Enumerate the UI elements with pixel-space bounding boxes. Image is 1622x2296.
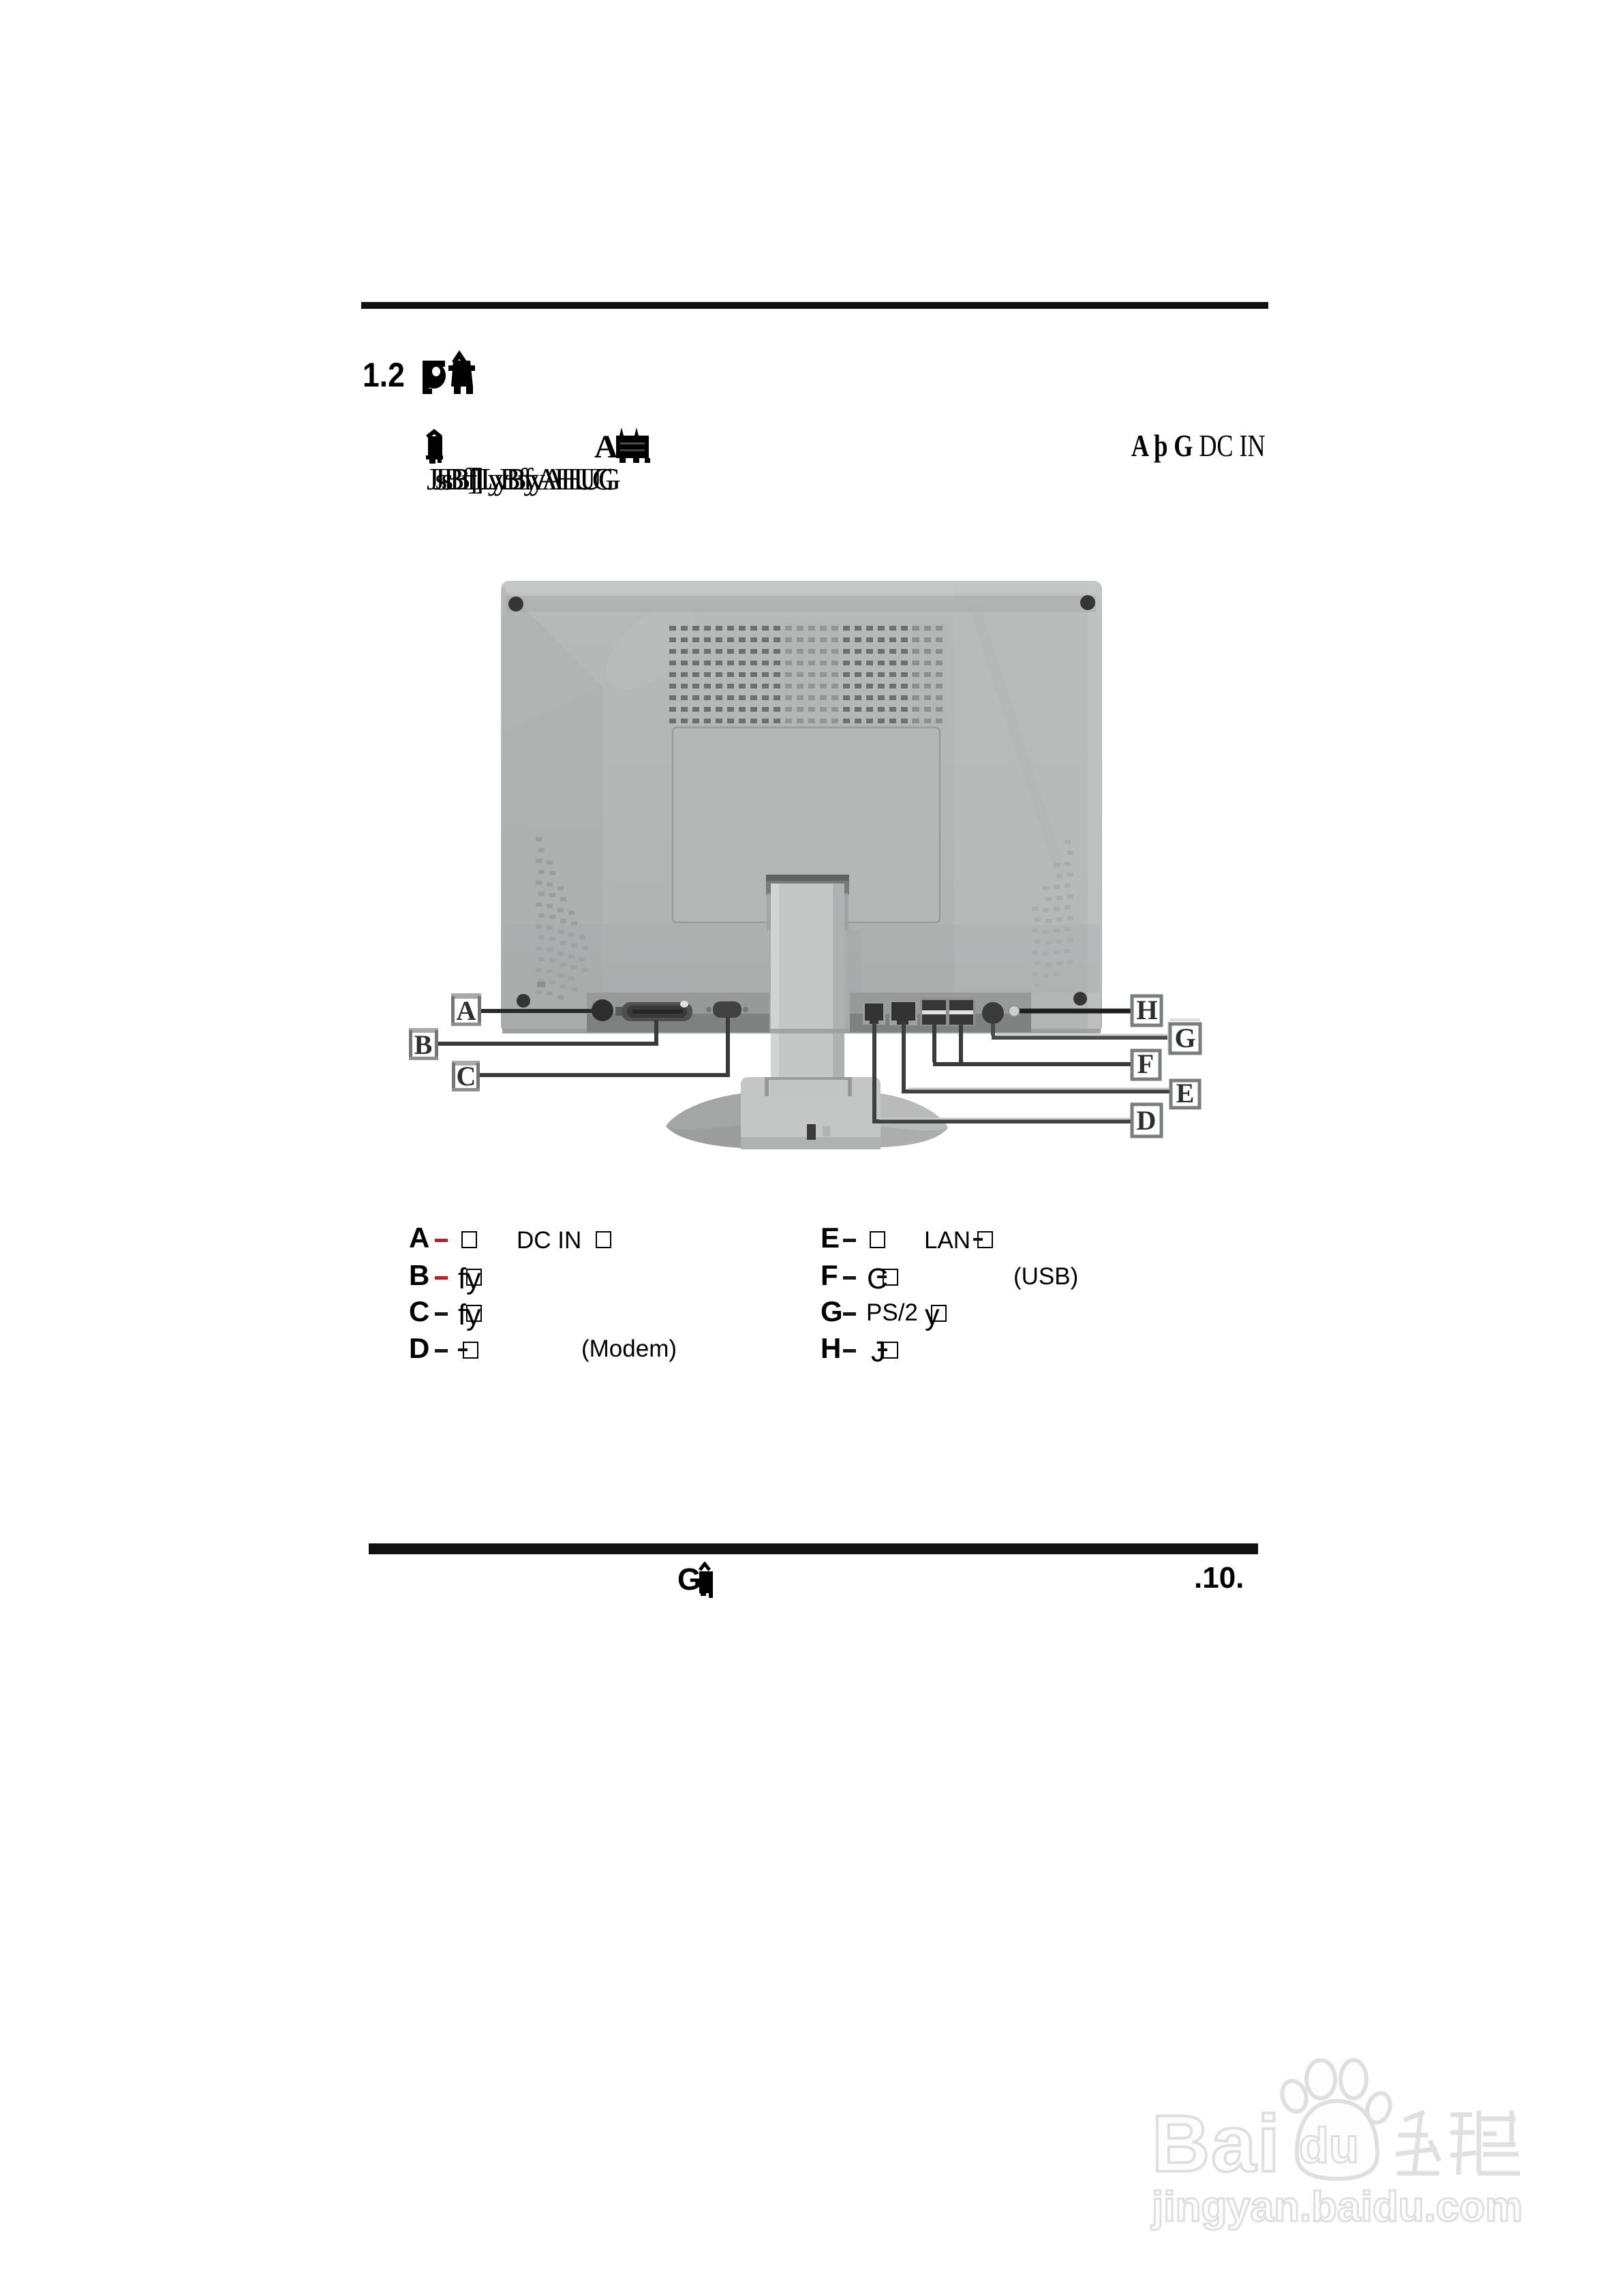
svg-text:A: A [457, 995, 476, 1026]
svg-text:Bai: Bai [1152, 2099, 1281, 2189]
svg-text:du: du [1299, 2119, 1359, 2173]
svg-text:B: B [414, 1029, 433, 1060]
svg-text:E: E [1176, 1078, 1195, 1108]
svg-text:jingyan.baidu.com: jingyan.baidu.com [1151, 2184, 1522, 2231]
svg-text:G: G [1174, 1023, 1195, 1053]
svg-text:F: F [1137, 1048, 1154, 1079]
svg-text:H: H [1136, 995, 1157, 1025]
svg-text:C: C [457, 1061, 476, 1091]
svg-text:D: D [1137, 1105, 1157, 1136]
